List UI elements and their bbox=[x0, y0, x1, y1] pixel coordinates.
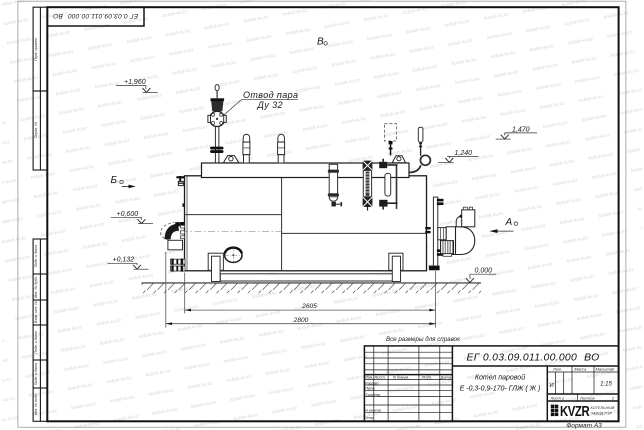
svg-text:Подп.: Подп. bbox=[422, 375, 433, 380]
svg-text:Справ. №: Справ. № bbox=[34, 122, 38, 138]
svg-text:Подп. и дата: Подп. и дата bbox=[34, 245, 38, 268]
svg-text:Разраб.: Разраб. bbox=[365, 380, 379, 385]
svg-text:В: В bbox=[317, 37, 324, 48]
svg-text:Масштаб: Масштаб bbox=[596, 367, 615, 372]
svg-text:Перв. примен.: Перв. примен. bbox=[34, 37, 38, 61]
svg-text:Отвод пара: Отвод пара bbox=[243, 90, 298, 100]
svg-text:Т.контр.: Т.контр. bbox=[365, 392, 381, 397]
svg-text:KVZR: KVZR bbox=[560, 403, 590, 420]
svg-text:Масса: Масса bbox=[575, 367, 588, 372]
svg-text:N докум.: N докум. bbox=[393, 375, 409, 380]
svg-text:Котел паровой: Котел паровой bbox=[475, 374, 525, 382]
svg-text:Е -0,3-0,9-170- ГЛЖ ( Ж ): Е -0,3-0,9-170- ГЛЖ ( Ж ) bbox=[460, 386, 541, 393]
svg-text:+0,132: +0,132 bbox=[113, 257, 135, 264]
svg-text:Инв. № подл.: Инв. № подл. bbox=[34, 393, 38, 415]
svg-text:1:15: 1:15 bbox=[600, 382, 612, 388]
svg-text:2605: 2605 bbox=[301, 303, 317, 310]
svg-text:Лит.: Лит. bbox=[552, 367, 562, 372]
svg-text:Инв. № дубл.: Инв. № дубл. bbox=[34, 276, 38, 298]
svg-text:Все размеры для справок: Все размеры для справок bbox=[386, 336, 461, 343]
svg-text:Ду 32: Ду 32 bbox=[257, 100, 283, 110]
svg-text:Дата: Дата bbox=[440, 375, 452, 380]
svg-text:Лист: Лист bbox=[374, 375, 386, 380]
svg-text:КОТЕЛЬНЫЙ: КОТЕЛЬНЫЙ bbox=[591, 406, 615, 410]
svg-text:А: А bbox=[505, 217, 513, 228]
svg-text:+0,600: +0,600 bbox=[117, 211, 139, 218]
svg-text:Утв.: Утв. bbox=[365, 415, 374, 420]
svg-text:И: И bbox=[550, 383, 555, 389]
svg-text:ЗАВОД РЭР: ЗАВОД РЭР bbox=[591, 412, 613, 416]
svg-text:Подп. и дата: Подп. и дата bbox=[34, 331, 38, 354]
svg-text:Н.контр.: Н.контр. bbox=[365, 408, 382, 413]
svg-text:Листов: Листов bbox=[579, 396, 595, 401]
svg-text:Пров.: Пров. bbox=[365, 386, 376, 391]
svg-text:0,000: 0,000 bbox=[475, 267, 493, 274]
svg-text:Формат А3: Формат А3 bbox=[566, 422, 602, 429]
svg-text:1,470: 1,470 bbox=[512, 127, 530, 134]
svg-text:Б: Б bbox=[111, 175, 118, 186]
svg-text:Лист 1: Лист 1 bbox=[550, 396, 565, 401]
svg-text:Подп. и дата: Подп. и дата bbox=[34, 363, 38, 386]
svg-text:1,240: 1,240 bbox=[455, 150, 473, 157]
svg-text:+1,960: +1,960 bbox=[124, 79, 146, 86]
svg-text:Изм.: Изм. bbox=[365, 375, 374, 380]
svg-text:2800: 2800 bbox=[293, 317, 309, 324]
svg-text:Взам. инв. №: Взам. инв. № bbox=[34, 301, 38, 323]
